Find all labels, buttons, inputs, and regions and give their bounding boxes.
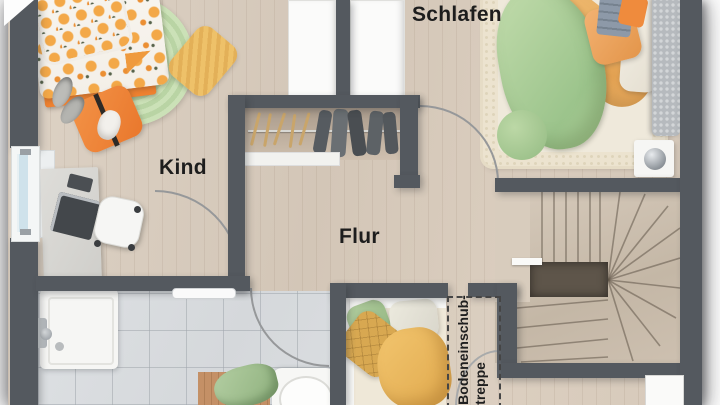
floorplan-scene: Bodeneinschub- treppe Schlafen Kind Flur (0, 0, 720, 405)
window-latch-bottom (20, 229, 31, 235)
stair-void (530, 262, 608, 297)
label-schlafen: Schlafen (412, 4, 502, 25)
window-glass (17, 154, 28, 232)
schlafen-headboard (652, 0, 680, 136)
window-latch-top (20, 149, 31, 155)
shower-knob (40, 328, 52, 340)
wardrobe-kind (288, 0, 338, 98)
chair-wheel (94, 240, 101, 247)
attic-hatch-label-line2: treppe (472, 295, 489, 405)
shower-tray-inner (48, 297, 114, 365)
wall-bedroom2-left (330, 283, 346, 405)
wall-schlafen-door (400, 95, 418, 178)
chair-wheel (128, 244, 135, 251)
stair-first-nosing (512, 258, 542, 265)
understairs-door (645, 375, 684, 405)
staircase (495, 192, 680, 363)
wall-left-lower (10, 238, 38, 405)
wall-schlafen-south (495, 178, 682, 192)
closet-shelf (238, 152, 340, 166)
attic-hatch-label: Bodeneinschub- treppe (455, 295, 489, 405)
attic-hatch-label-line1: Bodeneinschub- (455, 295, 472, 405)
wall-schlafen-door-foot (394, 175, 420, 188)
shower-drain (55, 342, 64, 351)
towel-rail (172, 288, 236, 299)
schlafen-duvet-green-curl (497, 110, 547, 160)
wall-bedroom2-top (330, 283, 448, 298)
wall-right (680, 0, 702, 405)
label-flur: Flur (339, 226, 380, 247)
wall-closet-top (228, 95, 420, 108)
wall-left-upper (10, 0, 38, 148)
label-kind: Kind (159, 157, 207, 178)
wardrobe-schlafen (350, 0, 405, 98)
nightstand-lamp (644, 148, 666, 170)
chair-wheel (134, 206, 141, 213)
wall-closet-left (228, 95, 245, 291)
wall-top-center (336, 0, 350, 97)
